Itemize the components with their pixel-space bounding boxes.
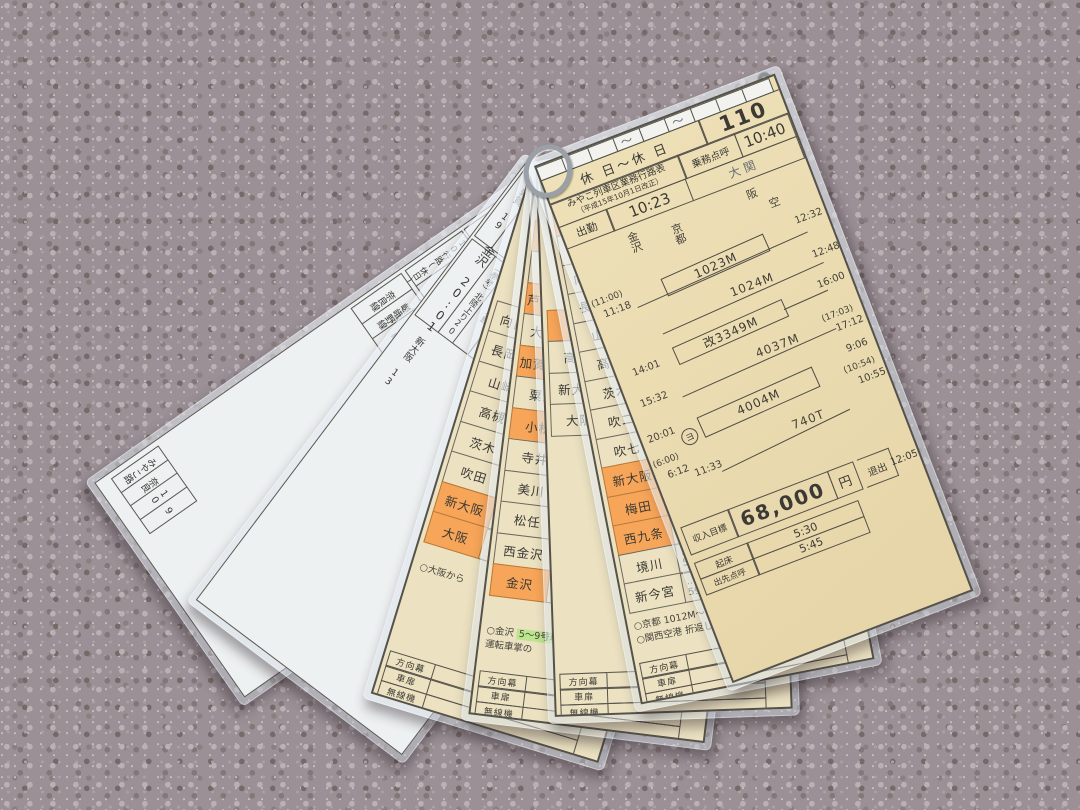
time-label: 20:01 <box>646 425 677 446</box>
time-label: 15:32 <box>639 390 670 411</box>
time-label: 11:33 <box>693 459 724 480</box>
axis-osaka: 阪 <box>744 184 760 203</box>
photo-scene: 新大阪 10:59 関西空港 11:15 高槻 11:12 JR京都線 11:4… <box>0 0 1080 810</box>
note-kanazawa-head: ○金沢 <box>486 625 514 639</box>
time-label: 6:12 <box>666 463 691 481</box>
overnight-mark: ヨ <box>679 425 701 447</box>
axis-kanazawa: 金沢 <box>623 229 646 255</box>
train-4037M: 4037M <box>754 331 802 361</box>
station-cell: 金沢 <box>489 563 551 603</box>
time-label: 14:01 <box>631 358 662 379</box>
time-label: 9:06 <box>845 336 870 354</box>
time-label: 16:00 <box>816 270 847 291</box>
radio-label: 無線機 <box>560 703 609 717</box>
train-1024M: 1024M <box>728 270 776 300</box>
note-kanazawa-tail: 運転車掌の <box>484 639 533 656</box>
axis-kyoto: 京都 <box>666 221 689 247</box>
axis-kansai-airport: 空 <box>766 193 782 212</box>
time-label: 12:32 <box>793 206 824 227</box>
time-label: 12:48 <box>811 240 842 261</box>
note-osaka: ○大阪から <box>418 561 466 588</box>
